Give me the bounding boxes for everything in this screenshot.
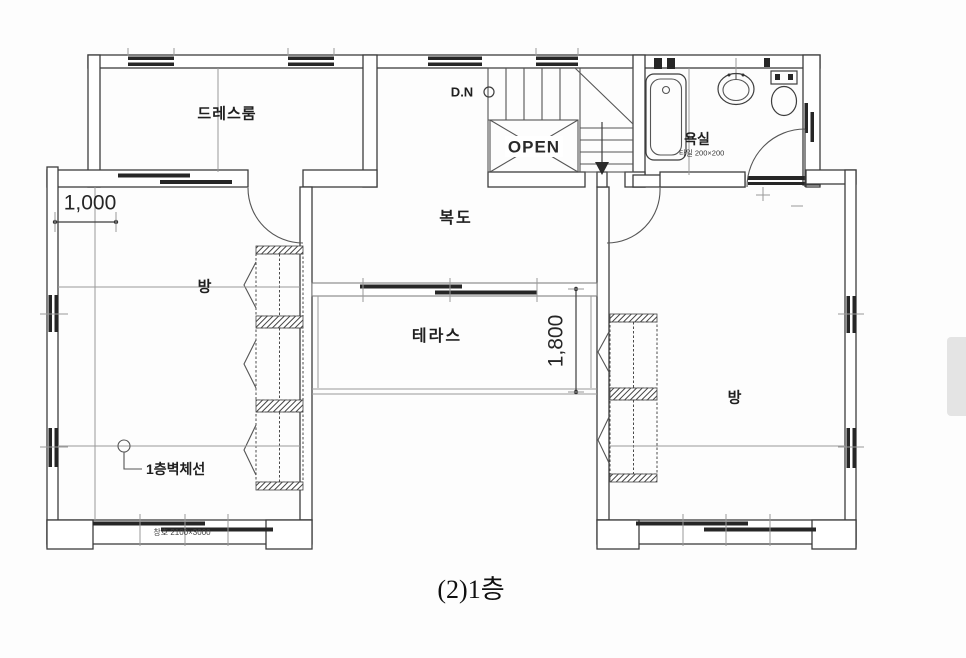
floor-plan-page: 드레스룸 복도 테라스 방 방 욕실 타일 200×200 D.N OPEN 1… (0, 0, 966, 658)
figure-caption: (2)1층 (437, 577, 504, 603)
room-label-left-room: 방 (198, 280, 213, 295)
dimension-1800 (568, 287, 584, 394)
scrollbar-thumb[interactable] (947, 337, 966, 416)
bathroom-fixtures (646, 58, 797, 175)
bathroom-finish-note: 타일 200×200 (679, 149, 724, 157)
stairs-open-void-label: OPEN (508, 139, 560, 156)
wall-line-annotation: 1층벽체선 (146, 462, 205, 476)
room-label-dressroom: 드레스룸 (197, 107, 256, 122)
dimension-1000 (53, 212, 118, 232)
door-arc-left-room (248, 188, 303, 243)
window-spec-annotation: 창호 2100×3000 (153, 529, 210, 537)
room-label-terrace: 테라스 (412, 329, 462, 345)
dimension-text-1800: 1,800 (546, 315, 567, 368)
room-label-corridor: 복도 (439, 211, 472, 227)
bathtub-icon (646, 58, 686, 160)
wardrobe-left-room (244, 246, 303, 490)
room-label-bathroom: 욕실 (684, 132, 710, 146)
floor-plan-drawing (0, 0, 966, 658)
wall-line-callout (118, 440, 142, 469)
door-arc-right-room (607, 188, 660, 243)
stairs-direction-label: D.N (451, 86, 473, 99)
stair-level-marker (484, 87, 494, 97)
stairs (484, 68, 633, 175)
dimension-text-1000: 1,000 (64, 193, 117, 214)
room-label-right-room: 방 (728, 391, 743, 406)
